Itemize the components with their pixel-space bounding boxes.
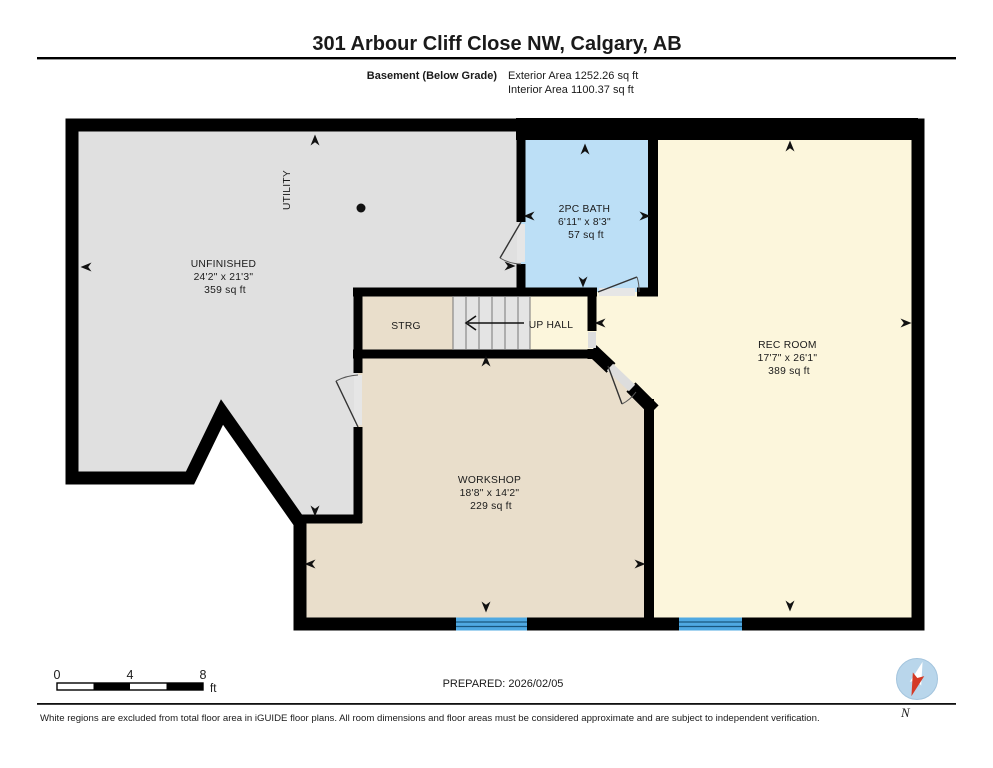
exterior-area: Exterior Area 1252.26 sq ft	[508, 70, 638, 82]
floor-plan-page: 301 Arbour Cliff Close NW, Calgary, AB B…	[0, 0, 993, 768]
scale-tick-8: 8	[200, 668, 207, 682]
compass: N	[897, 659, 938, 721]
disclaimer-text: White regions are excluded from total fl…	[40, 713, 820, 724]
footer-rule	[37, 703, 956, 705]
floor-plan-canvas: 301 Arbour Cliff Close NW, Calgary, AB B…	[0, 0, 993, 768]
scale-tick-0: 0	[54, 668, 61, 682]
workshop-window	[456, 618, 527, 631]
scale-bar-segment	[167, 683, 204, 690]
floor-label: Basement (Below Grade)	[367, 70, 498, 82]
exterior-wall-top-thick	[516, 118, 918, 140]
label-strg: STRG	[391, 321, 421, 332]
utility-point-marker	[357, 204, 366, 213]
label-up-hall: UP HALL	[529, 320, 574, 331]
title-rule	[37, 57, 956, 59]
scale-bar: 0 4 8 ft	[54, 668, 218, 695]
header: 301 Arbour Cliff Close NW, Calgary, AB B…	[37, 33, 956, 96]
scale-bar-segment	[94, 683, 131, 690]
compass-north-label: N	[900, 705, 911, 720]
page-title: 301 Arbour Cliff Close NW, Calgary, AB	[312, 33, 681, 55]
rec-room-window	[679, 618, 742, 631]
prepared-date: PREPARED: 2026/02/05	[443, 678, 564, 690]
label-utility: UTILITY	[282, 170, 293, 210]
footer: PREPARED: 2026/02/05 White regions are e…	[37, 659, 956, 725]
scale-unit: ft	[210, 683, 217, 695]
scale-tick-4: 4	[127, 668, 134, 682]
interior-area: Interior Area 1100.37 sq ft	[508, 84, 634, 96]
